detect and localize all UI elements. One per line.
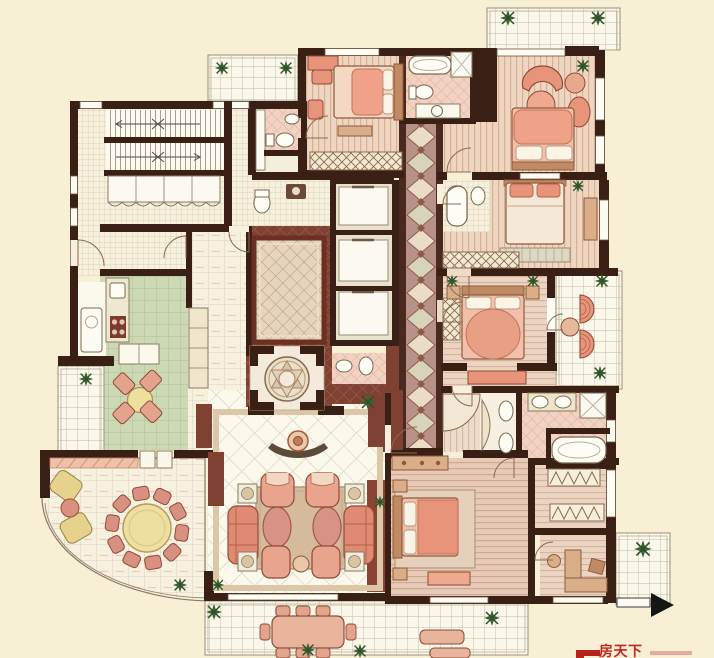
svg-text:房天下: 房天下 xyxy=(599,643,643,658)
